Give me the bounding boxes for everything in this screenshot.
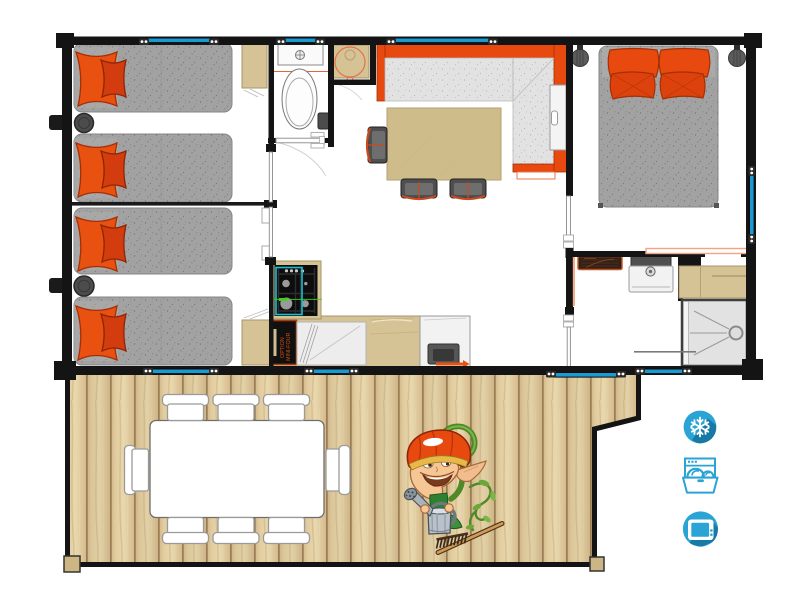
svg-text:MINI-FOUR: MINI-FOUR — [286, 332, 292, 361]
